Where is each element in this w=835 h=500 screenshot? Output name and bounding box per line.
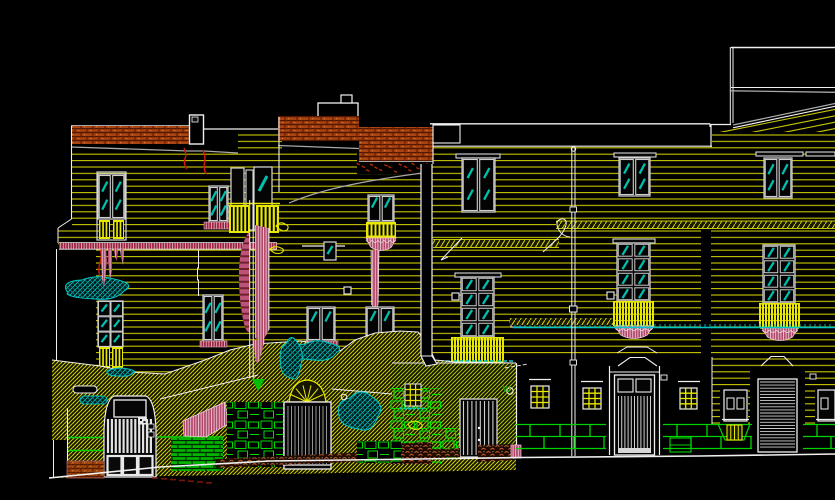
svg-text:W: W — [503, 385, 511, 394]
